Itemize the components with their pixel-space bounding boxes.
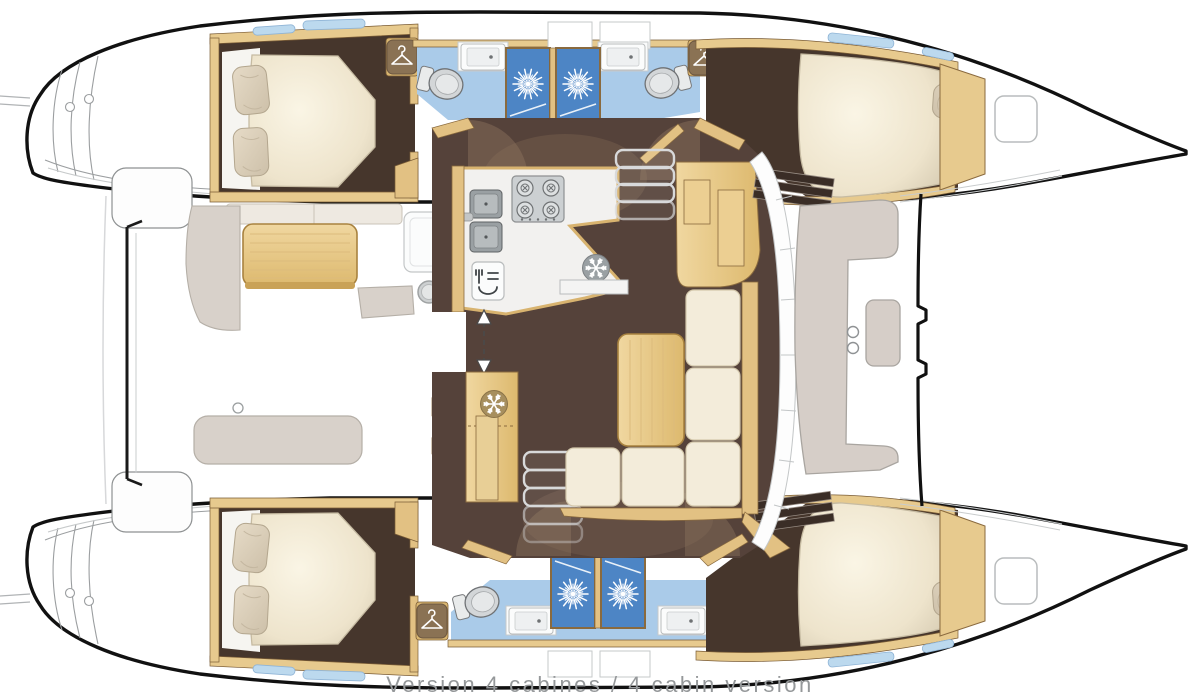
shower-stall: [551, 556, 595, 628]
pillow: [233, 127, 269, 177]
oven-icon: [472, 262, 504, 300]
catamaran-floor-plan: Version 4 cabines / 4 cabin version: [0, 0, 1200, 700]
salon-table: [618, 334, 684, 446]
caption: Version 4 cabines / 4 cabin version: [386, 672, 813, 697]
freezer-snowflake-icon: [481, 391, 508, 418]
salon: [420, 118, 834, 566]
bed-headboard: [940, 64, 985, 190]
floor-plan-page: Version 4 cabines / 4 cabin version: [0, 0, 1200, 700]
pillow: [232, 522, 271, 573]
sink-icon: [601, 44, 645, 70]
hanger-icon: [387, 40, 417, 74]
stove-icon: [512, 176, 564, 222]
stern-lines: [0, 96, 30, 106]
sink-icon: [509, 608, 553, 634]
hull-window: [303, 670, 365, 681]
stern-lines: [0, 594, 30, 604]
deck-hatch: [995, 558, 1037, 604]
bridgedeck-bow-edge: [918, 194, 926, 506]
bed-headboard: [940, 510, 985, 636]
fridge-snowflake-icon: [583, 255, 610, 282]
deck-hatch: [995, 96, 1037, 142]
bed-mattress: [798, 503, 940, 646]
sink-icon: [661, 608, 705, 634]
stairs-port-hull: [616, 150, 674, 219]
drink-holder: [848, 327, 859, 338]
aft-sunbed: [194, 416, 362, 464]
sideboard: [560, 280, 628, 294]
forward-cockpit-table: [866, 300, 900, 366]
cockpit-bench: [186, 206, 240, 330]
cockpit-seat: [358, 286, 414, 318]
shower-stall: [556, 48, 600, 120]
starboard-aft-cabin: [210, 498, 418, 681]
shower-stall: [601, 556, 645, 628]
cockpit-table: [243, 224, 357, 289]
hanger-icon: [417, 604, 447, 638]
hull-window: [303, 19, 365, 30]
fridge-cabinet: [466, 372, 518, 502]
aft-cockpit: [103, 196, 468, 504]
pillow: [233, 585, 269, 635]
bed-mattress: [798, 54, 940, 197]
drink-holder: [233, 403, 243, 413]
forward-cockpit: [795, 170, 1062, 530]
pillow: [232, 64, 271, 115]
drink-holder: [848, 343, 859, 354]
sink-icon: [461, 44, 505, 70]
shower-stall: [506, 48, 550, 120]
